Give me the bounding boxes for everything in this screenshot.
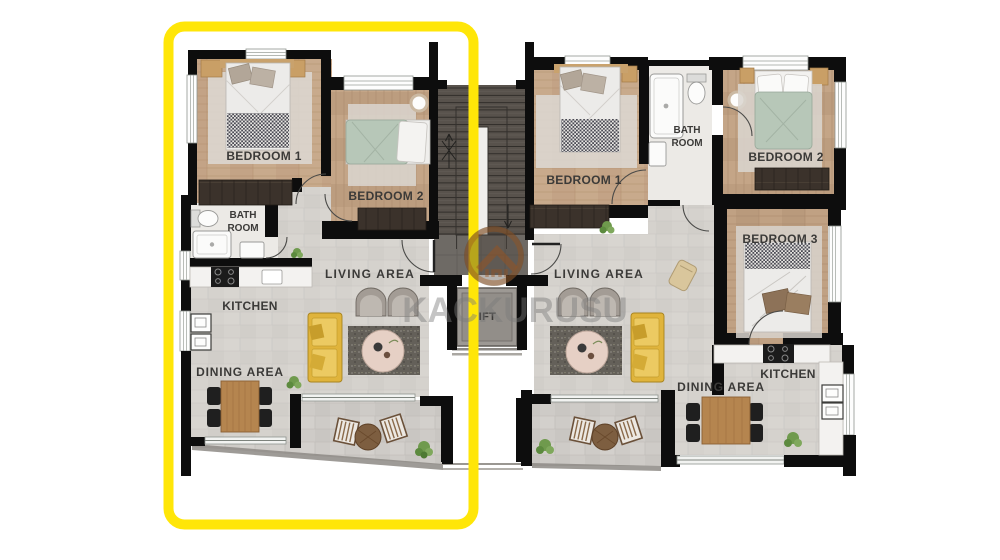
svg-text:BEDROOM 3: BEDROOM 3 <box>742 232 817 246</box>
svg-text:BEDROOM 1: BEDROOM 1 <box>226 149 301 163</box>
svg-text:ROOM: ROOM <box>671 138 702 149</box>
svg-text:KITCHEN: KITCHEN <box>222 299 277 313</box>
svg-text:BATH: BATH <box>673 125 700 136</box>
svg-text:ROOM: ROOM <box>227 223 258 234</box>
svg-text:DINING AREA: DINING AREA <box>677 380 765 394</box>
svg-text:LIVING AREA: LIVING AREA <box>554 267 644 281</box>
svg-text:DINING AREA: DINING AREA <box>196 365 284 379</box>
svg-text:KACKURUSU: KACKURUSU <box>402 291 628 330</box>
svg-text:KITCHEN: KITCHEN <box>760 367 815 381</box>
svg-text:BEDROOM 1: BEDROOM 1 <box>546 173 621 187</box>
svg-text:BATH: BATH <box>229 210 256 221</box>
svg-text:BEDROOM 2: BEDROOM 2 <box>348 189 423 203</box>
svg-text:LIVING AREA: LIVING AREA <box>325 267 415 281</box>
svg-text:BEDROOM 2: BEDROOM 2 <box>748 150 823 164</box>
